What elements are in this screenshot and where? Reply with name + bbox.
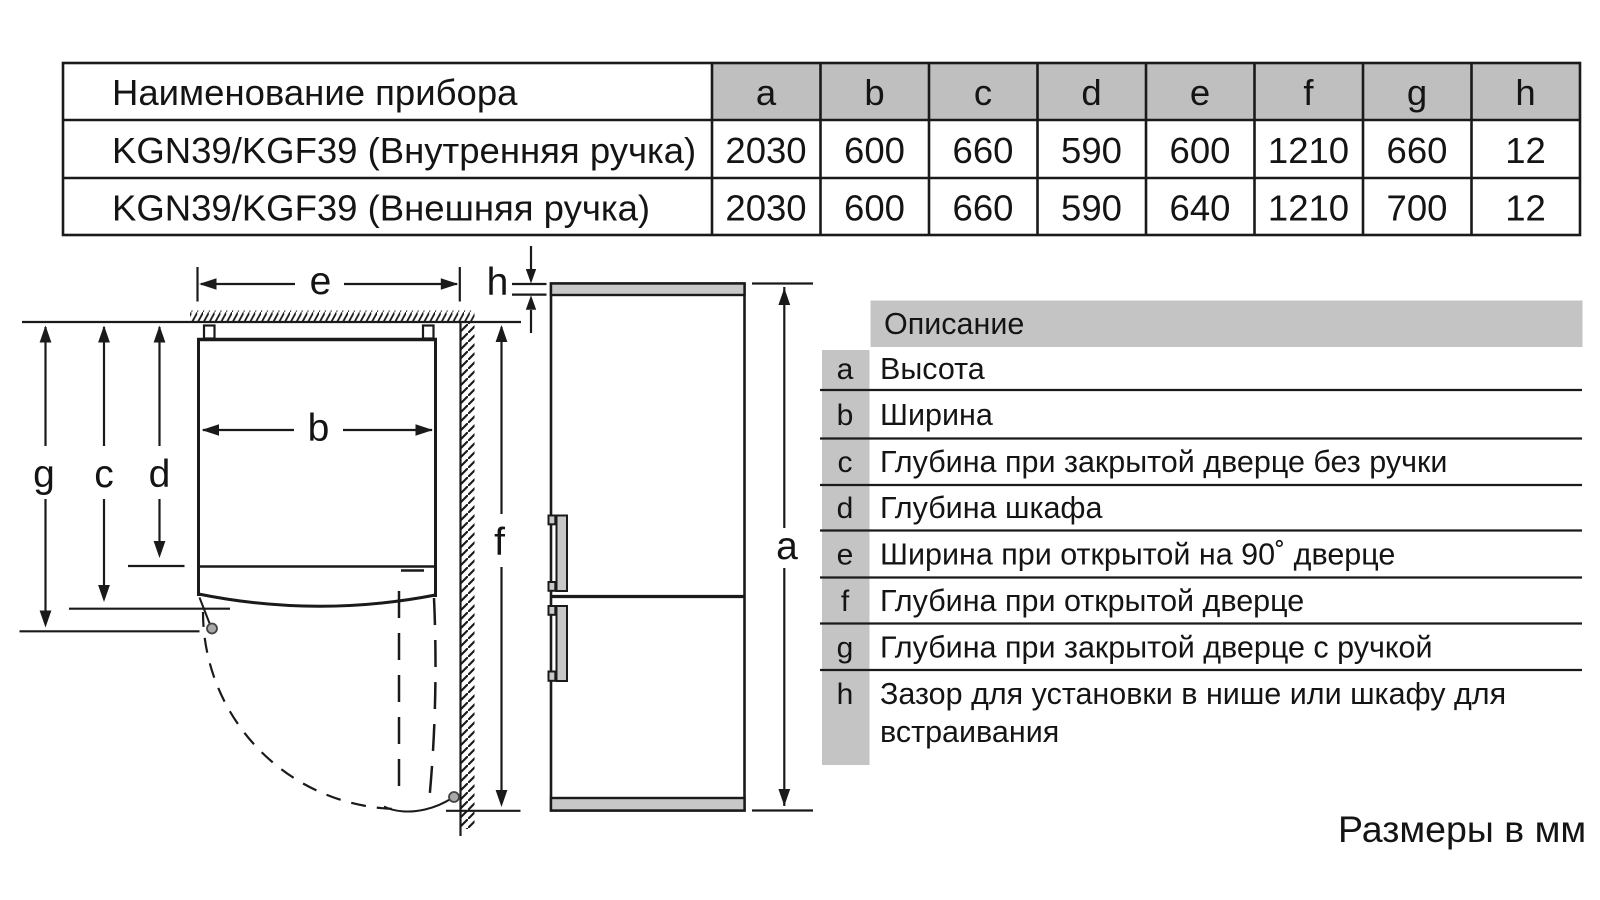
svg-text:Глубина шкафа: Глубина шкафа <box>880 491 1103 525</box>
svg-text:f: f <box>494 521 505 564</box>
svg-text:h: h <box>1515 72 1535 113</box>
svg-text:Ширина: Ширина <box>880 398 993 432</box>
svg-text:660: 660 <box>953 188 1014 229</box>
svg-text:a: a <box>756 72 777 113</box>
svg-text:f: f <box>1303 72 1314 113</box>
svg-text:d: d <box>1081 72 1101 113</box>
svg-text:встраивания: встраивания <box>880 715 1059 749</box>
svg-text:c: c <box>974 72 992 113</box>
svg-text:b: b <box>837 399 854 432</box>
svg-text:Глубина при закрытой дверце с: Глубина при закрытой дверце с ручкой <box>880 631 1433 665</box>
svg-text:Глубина при закрытой дверце бе: Глубина при закрытой дверце без ручки <box>880 445 1447 479</box>
svg-text:1210: 1210 <box>1268 188 1349 229</box>
svg-text:640: 640 <box>1170 188 1231 229</box>
svg-text:1210: 1210 <box>1268 130 1349 171</box>
svg-text:a: a <box>837 353 854 386</box>
svg-text:c: c <box>838 446 853 479</box>
svg-text:Высота: Высота <box>880 352 985 386</box>
svg-text:12: 12 <box>1505 130 1546 171</box>
svg-text:Наименование прибора: Наименование прибора <box>112 72 518 113</box>
svg-text:2030: 2030 <box>725 188 806 229</box>
svg-text:a: a <box>776 525 798 568</box>
svg-text:e: e <box>1190 72 1210 113</box>
svg-text:590: 590 <box>1061 188 1122 229</box>
svg-text:600: 600 <box>1170 130 1231 171</box>
svg-text:Ширина при открытой на 90˚ две: Ширина при открытой на 90˚ дверце <box>880 538 1395 572</box>
svg-text:Глубина при открытой дверце: Глубина при открытой дверце <box>880 584 1304 618</box>
svg-text:e: e <box>310 260 332 303</box>
svg-text:2030: 2030 <box>725 130 806 171</box>
svg-text:c: c <box>94 453 114 496</box>
svg-text:Размеры в мм: Размеры в мм <box>1338 808 1586 850</box>
svg-text:d: d <box>149 453 171 496</box>
svg-text:f: f <box>841 585 850 618</box>
svg-text:600: 600 <box>844 130 905 171</box>
svg-text:590: 590 <box>1061 130 1122 171</box>
svg-text:Описание: Описание <box>884 307 1024 341</box>
svg-text:700: 700 <box>1387 188 1448 229</box>
svg-text:600: 600 <box>844 188 905 229</box>
svg-text:KGN39/KGF39 (Внутренняя ручка): KGN39/KGF39 (Внутренняя ручка) <box>112 130 696 171</box>
svg-text:Зазор для установки в нише или: Зазор для установки в нише или шкафу для <box>880 677 1506 711</box>
svg-text:660: 660 <box>953 130 1014 171</box>
svg-text:g: g <box>1407 72 1427 113</box>
svg-text:g: g <box>33 453 55 496</box>
svg-text:h: h <box>837 678 854 711</box>
svg-text:KGN39/KGF39 (Внешняя ручка): KGN39/KGF39 (Внешняя ручка) <box>112 188 650 229</box>
svg-text:d: d <box>837 492 854 525</box>
svg-text:b: b <box>308 407 330 450</box>
svg-text:g: g <box>837 632 854 665</box>
svg-text:b: b <box>864 72 884 113</box>
svg-text:e: e <box>837 539 854 572</box>
svg-text:660: 660 <box>1387 130 1448 171</box>
svg-text:h: h <box>487 261 509 304</box>
svg-text:12: 12 <box>1505 188 1546 229</box>
